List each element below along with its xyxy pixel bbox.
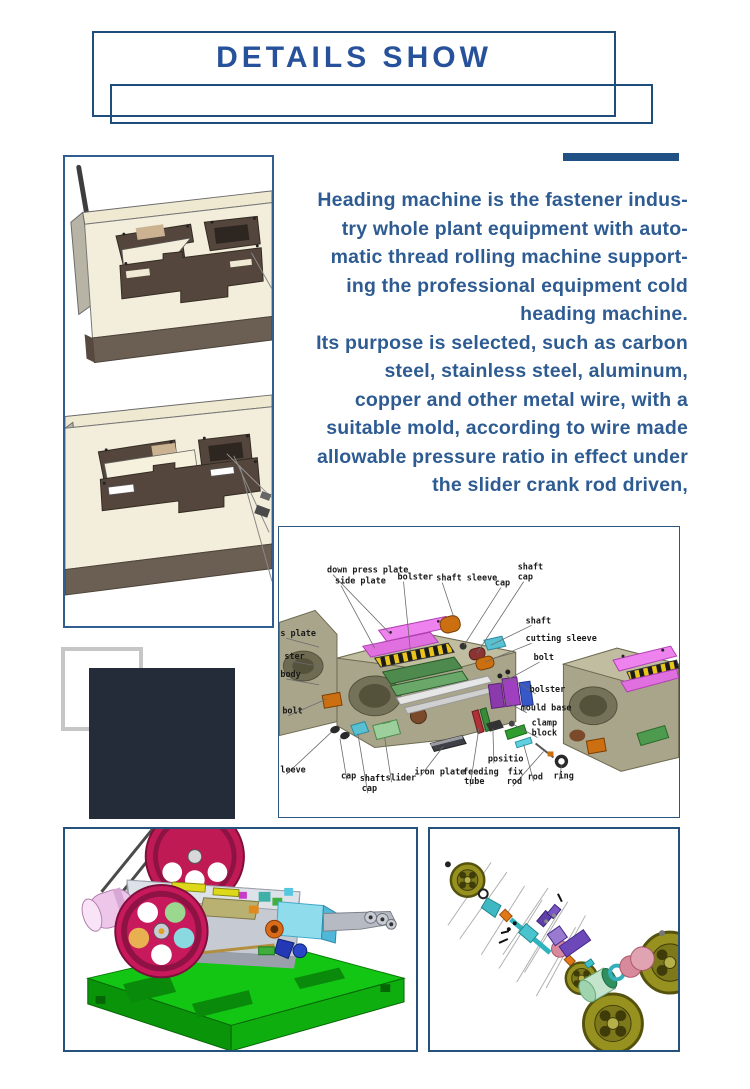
part-label: side plate bbox=[335, 576, 386, 586]
leader-line bbox=[464, 588, 501, 646]
intro-line: steel, stainless steel, aluminum, bbox=[280, 357, 688, 386]
intro-line: Heading machine is the fastener indus- bbox=[280, 186, 688, 215]
figure-exploded-parts-diagram: down press plateside platebolstershaft s… bbox=[278, 526, 680, 818]
mold-bottom-view bbox=[65, 395, 272, 595]
heading-machine-drawing bbox=[65, 829, 416, 1050]
part-label: clamp bbox=[532, 718, 557, 728]
accent-bar bbox=[563, 153, 679, 161]
part-label: positio bbox=[488, 753, 524, 763]
intro-line: copper and other metal wire, with a bbox=[280, 386, 688, 415]
intro-line: Its purpose is selected, such as carbon bbox=[280, 329, 688, 358]
part-label: shaft bbox=[518, 562, 543, 572]
part-label: cap bbox=[362, 783, 377, 793]
part-label: shaft bbox=[526, 615, 551, 625]
part-label: rod bbox=[528, 771, 543, 781]
crank-assembly bbox=[547, 926, 678, 1050]
part-label: down press plate bbox=[327, 565, 408, 575]
part-label: rod bbox=[507, 776, 522, 786]
mold-top-view bbox=[71, 167, 272, 362]
part-label: cutting sleeve bbox=[526, 633, 597, 643]
diagram-parts bbox=[279, 610, 678, 771]
figure-crankshaft-exploded-render bbox=[428, 827, 680, 1052]
part-label: shaft bbox=[360, 773, 385, 783]
part-label: bolster bbox=[398, 572, 434, 582]
intro-line: matic thread rolling machine support- bbox=[280, 243, 688, 272]
part-label: tube bbox=[464, 776, 484, 786]
part-label: leeve bbox=[280, 764, 305, 774]
leader-line bbox=[341, 586, 375, 649]
part-label: iron plate bbox=[414, 766, 465, 776]
part-label: feeding bbox=[463, 766, 499, 776]
front-flywheel bbox=[115, 885, 207, 977]
part-label: bolt bbox=[282, 706, 302, 716]
part-label: cap bbox=[518, 572, 533, 582]
leader-line bbox=[442, 583, 454, 619]
part-label: ster bbox=[284, 651, 304, 661]
intro-line: heading machine. bbox=[280, 300, 688, 329]
mold-plates-drawing bbox=[65, 157, 272, 626]
exploded-parts-drawing: down press plateside platebolstershaft s… bbox=[279, 527, 679, 817]
intro-line: allowable pressure ratio in effect under bbox=[280, 443, 688, 472]
intro-line: suitable mold, according to wire made bbox=[280, 414, 688, 443]
page-title: DETAILS SHOW bbox=[92, 42, 616, 74]
figure-mold-plates-cad bbox=[63, 155, 274, 628]
part-label: cap bbox=[495, 578, 510, 588]
part-label: bolt bbox=[534, 652, 554, 662]
part-label: shaft sleeve bbox=[436, 573, 497, 583]
part-label: body bbox=[280, 669, 300, 679]
part-label: block bbox=[532, 728, 557, 738]
crankshaft-drawing bbox=[430, 829, 678, 1050]
part-label: s plate bbox=[280, 628, 316, 638]
decorative-navy-square bbox=[89, 668, 235, 819]
product-detail-page: DETAILS SHOW Heading machine is the fast… bbox=[0, 0, 750, 1089]
intro-line: ing the professional equipment cold bbox=[280, 272, 688, 301]
title-box-inner bbox=[110, 84, 653, 124]
part-label: bolster bbox=[530, 684, 566, 694]
figure-heading-machine-render bbox=[63, 827, 418, 1052]
part-label: cap bbox=[341, 770, 356, 780]
part-label: slider bbox=[386, 772, 416, 782]
part-label: ring bbox=[553, 770, 573, 780]
intro-line: try whole plant equipment with auto- bbox=[280, 215, 688, 244]
part-label: fix bbox=[508, 766, 523, 776]
part-label: mould base bbox=[521, 703, 572, 713]
intro-line: the slider crank rod driven, bbox=[280, 471, 688, 500]
intro-paragraph: Heading machine is the fastener indus-tr… bbox=[280, 186, 688, 500]
